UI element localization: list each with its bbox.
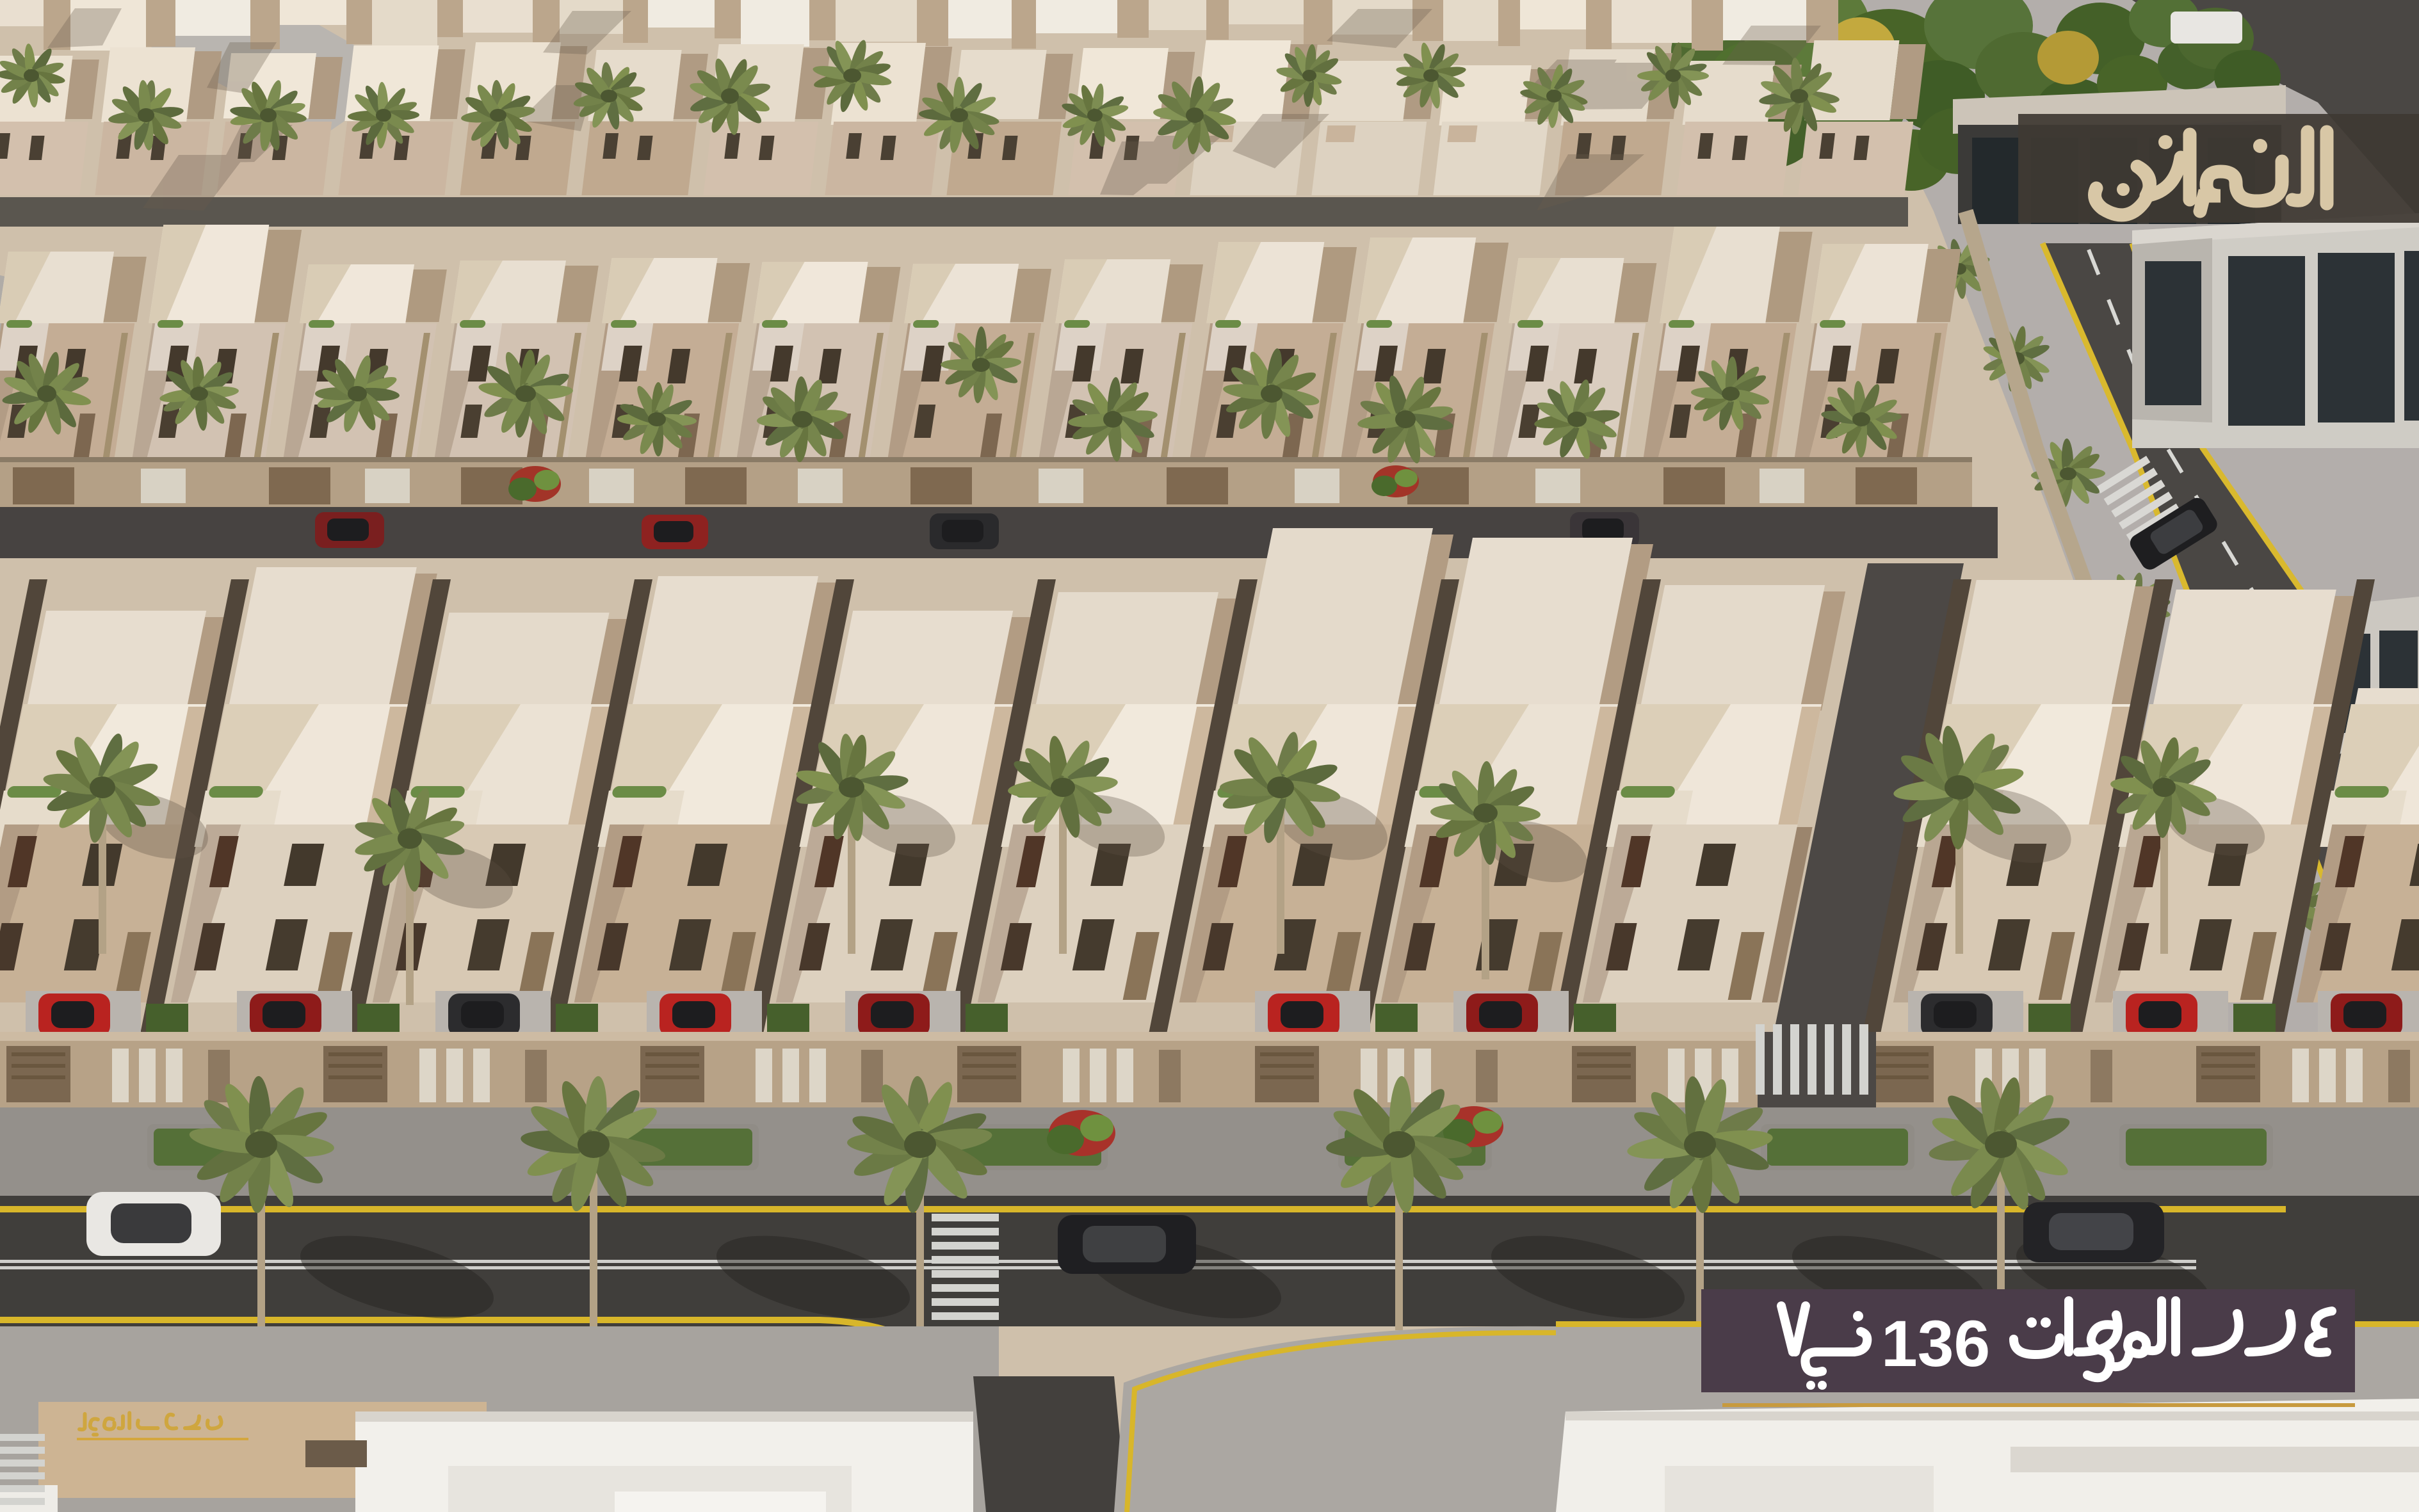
svg-text:136: 136 bbox=[1881, 1307, 1990, 1380]
